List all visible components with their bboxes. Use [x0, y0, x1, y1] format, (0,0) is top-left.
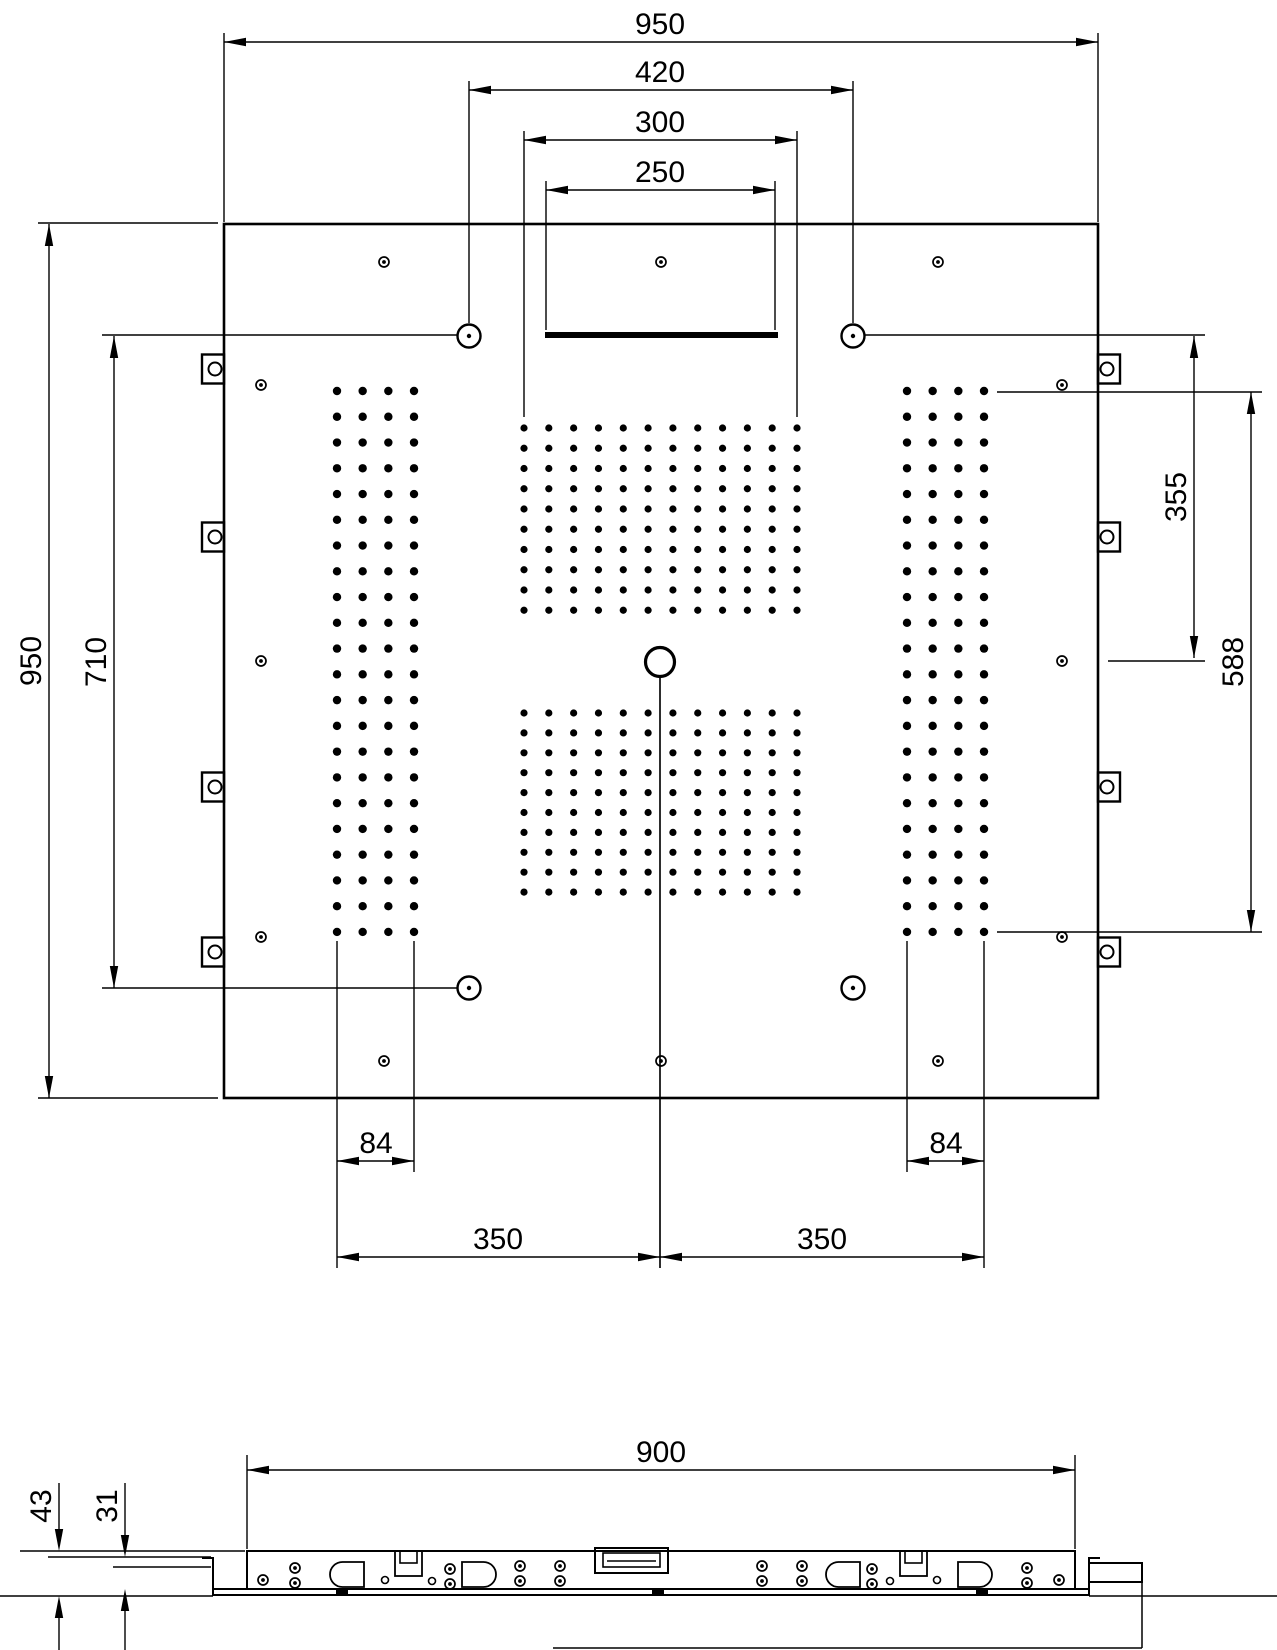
technical-drawing: 950 420 300 250 950 710 355 588 84 84 35…: [0, 0, 1277, 1650]
extension-lines: [0, 33, 1277, 1596]
mounting-tab-right: [1098, 773, 1120, 802]
top-view: [202, 224, 1120, 1098]
dim-label-900: 900: [636, 1436, 686, 1469]
nozzle-grid-left-strip: [333, 387, 418, 936]
support-foot: [652, 1589, 664, 1594]
dim-label-300: 300: [635, 106, 685, 139]
pilot-hole-icon: [934, 1577, 941, 1584]
mounting-tab-right: [1098, 355, 1120, 384]
mounting-tab-left: [202, 355, 224, 384]
keyhole-slot-icon: [958, 1562, 992, 1587]
mounting-tab-left: [202, 773, 224, 802]
dim-label-355: 355: [1160, 472, 1193, 522]
side-view: [202, 1548, 1142, 1648]
fixing-hole-circles: [458, 325, 865, 1000]
nozzle-grid-center-upper: [520, 424, 800, 613]
side-end-bracket: [1089, 1563, 1142, 1582]
support-foot: [336, 1589, 348, 1594]
dim-label-950-left: 950: [15, 636, 48, 686]
dim-label-588: 588: [1217, 637, 1250, 687]
nozzle-grid-right-strip: [903, 387, 988, 936]
mounting-tab-left: [202, 938, 224, 967]
dim-label-350-left: 350: [473, 1223, 523, 1256]
keyhole-slot-icon: [330, 1562, 364, 1587]
support-foot: [976, 1589, 988, 1594]
pilot-hole-icon: [887, 1578, 894, 1585]
dimension-labels: 950 420 300 250 950 710 355 588 84 84 35…: [15, 8, 1250, 1523]
dim-label-350-right: 350: [797, 1223, 847, 1256]
center-outlet: [646, 648, 675, 677]
mounting-tab-right: [1098, 938, 1120, 967]
dim-label-84-left: 84: [359, 1127, 392, 1160]
dim-label-710: 710: [80, 637, 113, 687]
mounting-tab-left: [202, 523, 224, 552]
drawing-page: 950 420 300 250 950 710 355 588 84 84 35…: [0, 0, 1277, 1650]
dim-label-250: 250: [635, 156, 685, 189]
dim-label-950-top: 950: [635, 8, 685, 41]
dim-label-420: 420: [635, 56, 685, 89]
keyhole-slot-icon: [826, 1562, 860, 1587]
light-slot-bar: [545, 332, 778, 338]
dim-label-31: 31: [91, 1489, 124, 1522]
dim-label-43: 43: [25, 1489, 58, 1522]
pilot-hole-icon: [382, 1577, 389, 1584]
side-edge-hook: [202, 1558, 213, 1589]
mounting-tab-right: [1098, 523, 1120, 552]
side-housing: [247, 1551, 1075, 1589]
pilot-hole-icon: [429, 1578, 436, 1585]
dim-label-84-right: 84: [929, 1127, 962, 1160]
keyhole-slot-icon: [462, 1562, 496, 1587]
panel-outline: [224, 224, 1098, 1098]
fastening-screws: [256, 257, 1067, 1066]
dimension-lines: [45, 38, 1255, 1650]
